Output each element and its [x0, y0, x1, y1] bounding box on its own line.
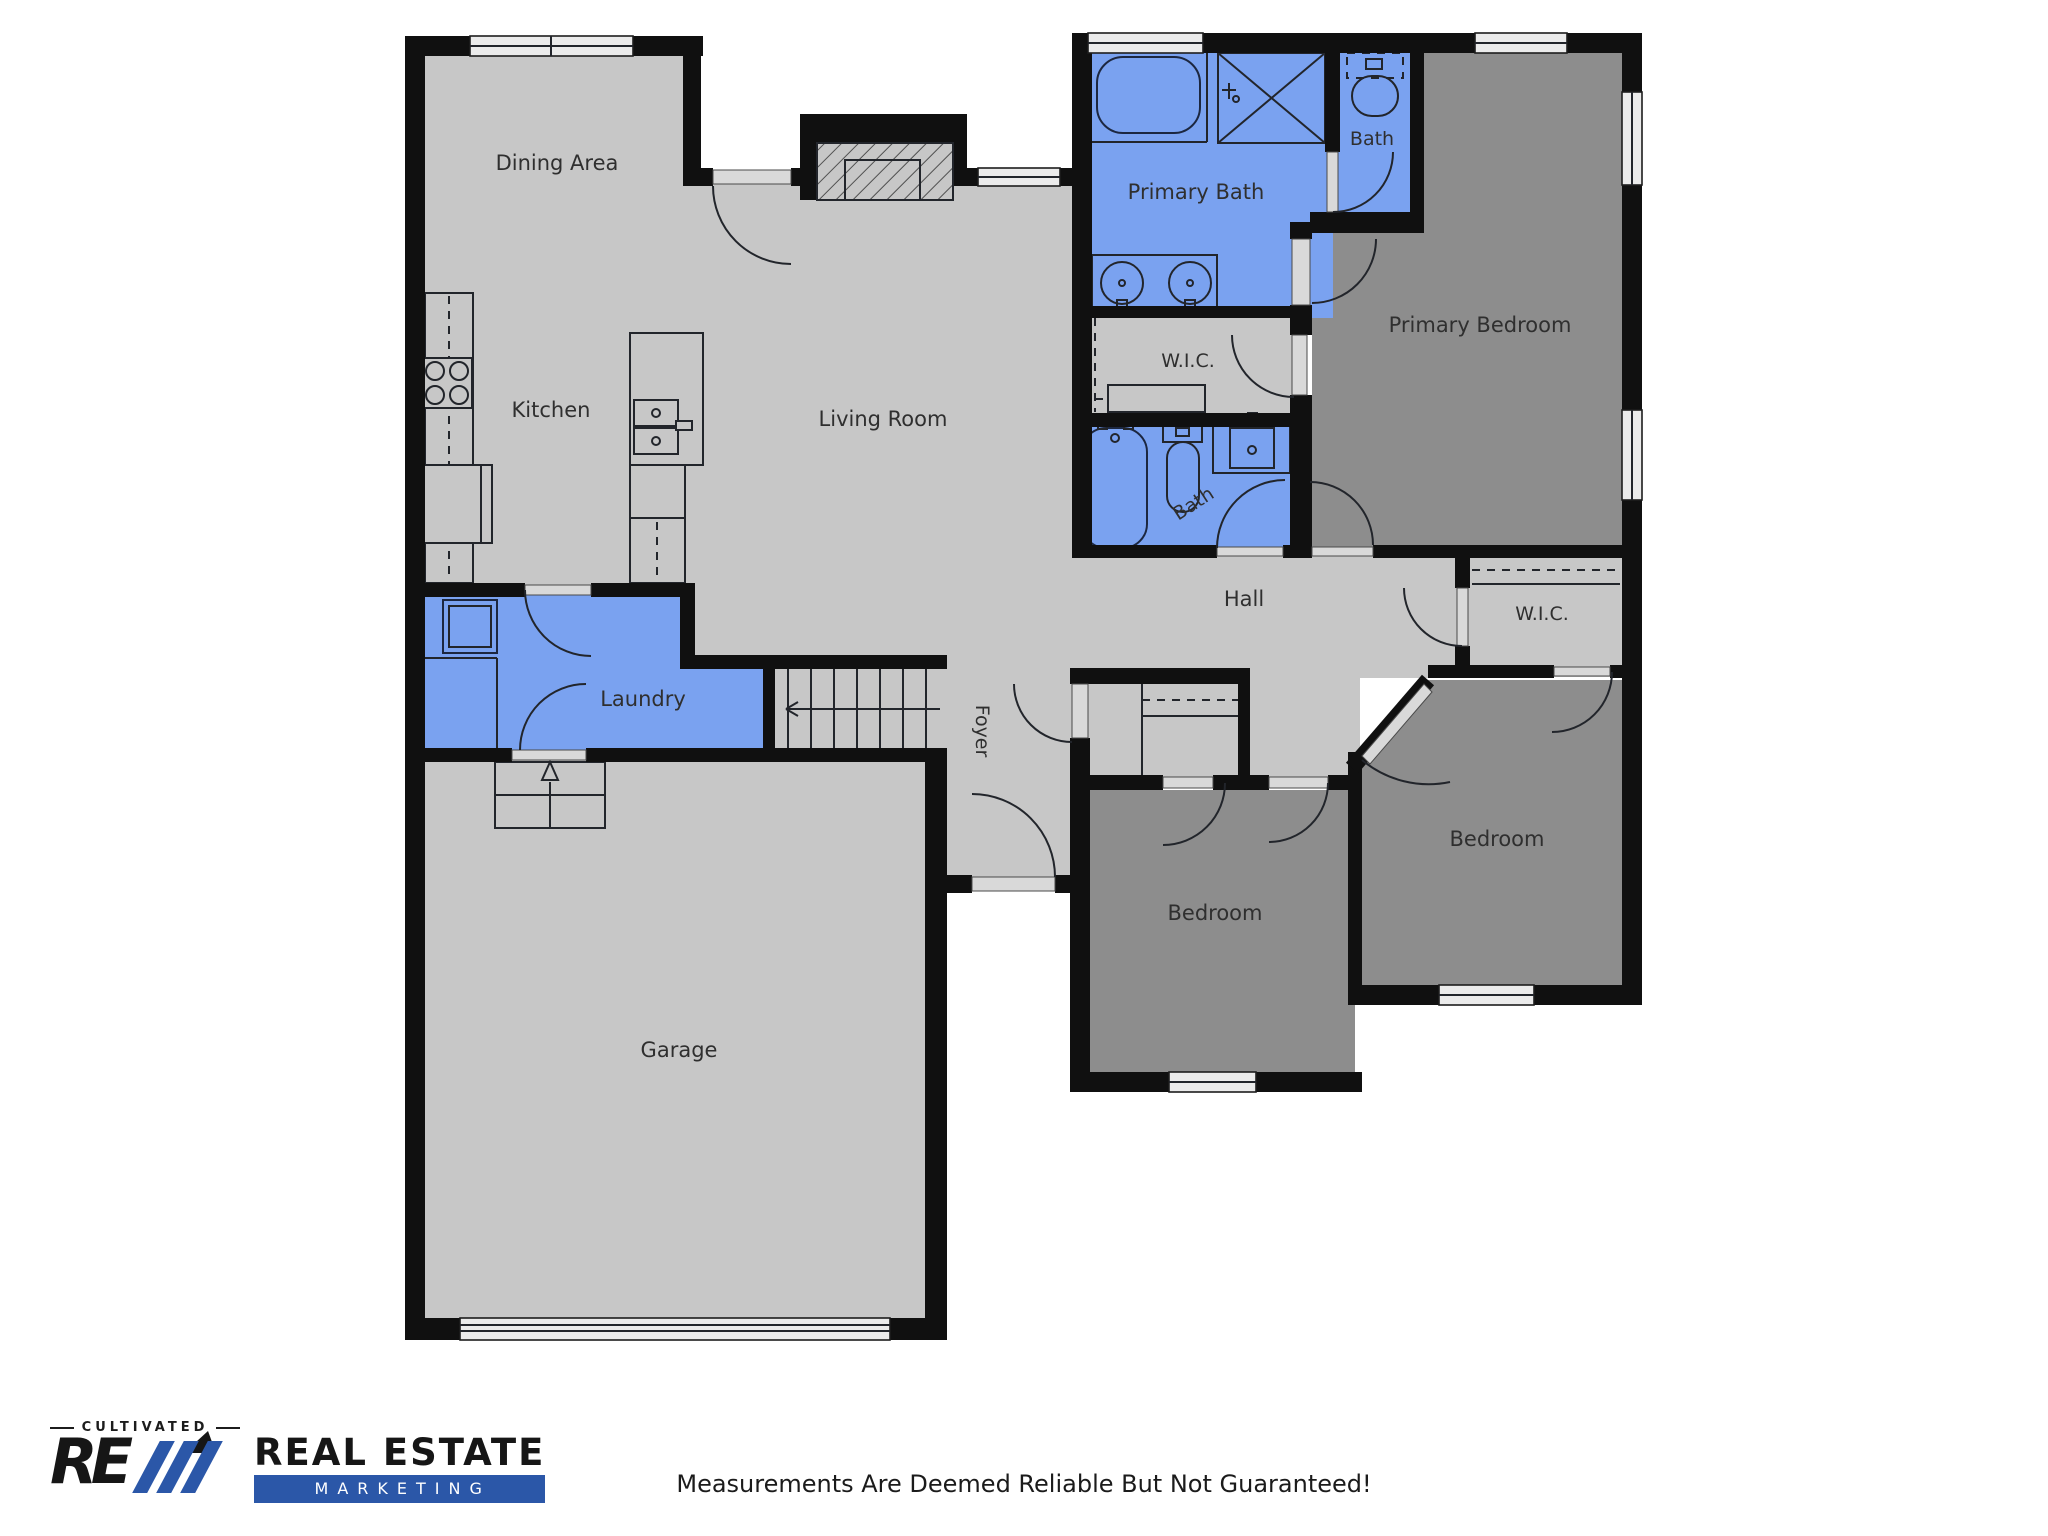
- floor-plan: Dining Area Kitchen Living Room Primary …: [0, 0, 2048, 1536]
- door-sill: [1312, 547, 1373, 556]
- door-sill: [1327, 152, 1338, 212]
- label-living: Living Room: [819, 407, 948, 431]
- label-wic-primary: W.I.C.: [1161, 350, 1215, 372]
- label-kitchen: Kitchen: [512, 398, 591, 422]
- fireplace-icon: [817, 143, 953, 200]
- door-sill: [1457, 588, 1468, 646]
- brand-title: REAL ESTATE: [254, 1434, 545, 1471]
- window: [470, 36, 633, 56]
- window: [978, 168, 1060, 186]
- room-coat-closet: [1075, 668, 1250, 788]
- label-bath-upper: Bath: [1350, 128, 1394, 150]
- door-sill: [1269, 777, 1328, 788]
- window: [1622, 92, 1642, 185]
- door-sill: [713, 170, 791, 184]
- tagline-dash: [216, 1427, 240, 1429]
- label-laundry: Laundry: [600, 687, 686, 711]
- door-sill: [1072, 684, 1088, 738]
- window: [1169, 1072, 1256, 1092]
- window: [1439, 985, 1534, 1005]
- door-sill: [1292, 239, 1310, 305]
- room-fills: [415, 45, 1630, 1325]
- bathtub-icon: [1097, 57, 1200, 133]
- window: [1475, 33, 1567, 53]
- label-dining: Dining Area: [496, 151, 619, 175]
- label-primary-bath: Primary Bath: [1128, 180, 1265, 204]
- window: [1622, 410, 1642, 500]
- label-wic-bedroom: W.I.C.: [1515, 603, 1569, 625]
- door-sill: [1292, 335, 1307, 395]
- room-bedroom-middle: [1085, 790, 1355, 1080]
- label-garage: Garage: [641, 1038, 718, 1062]
- garage-fixtures: [495, 762, 605, 828]
- label-hall: Hall: [1224, 587, 1264, 611]
- label-primary-bedroom: Primary Bedroom: [1389, 313, 1572, 337]
- door-sill: [512, 750, 586, 760]
- label-bedroom-right: Bedroom: [1450, 827, 1545, 851]
- front-door-sill: [972, 877, 1055, 891]
- window: [1088, 33, 1203, 53]
- room-foyer: [945, 650, 1090, 890]
- room-hall-strip: [1245, 660, 1360, 778]
- door-sill: [1163, 777, 1213, 788]
- door-sill: [525, 585, 591, 595]
- washer-icon: [443, 600, 497, 653]
- faucet-icon: [676, 421, 692, 430]
- closet-shelf: [1108, 385, 1205, 412]
- label-foyer: Foyer: [971, 705, 993, 758]
- disclaimer-text: Measurements Are Deemed Reliable But Not…: [0, 1470, 2048, 1498]
- room-hall: [1085, 552, 1465, 678]
- stove-icon: [422, 358, 472, 408]
- garage-door: [460, 1318, 890, 1340]
- door-sill: [1554, 667, 1610, 676]
- label-bedroom-middle: Bedroom: [1168, 901, 1263, 925]
- door-sill: [1217, 547, 1283, 556]
